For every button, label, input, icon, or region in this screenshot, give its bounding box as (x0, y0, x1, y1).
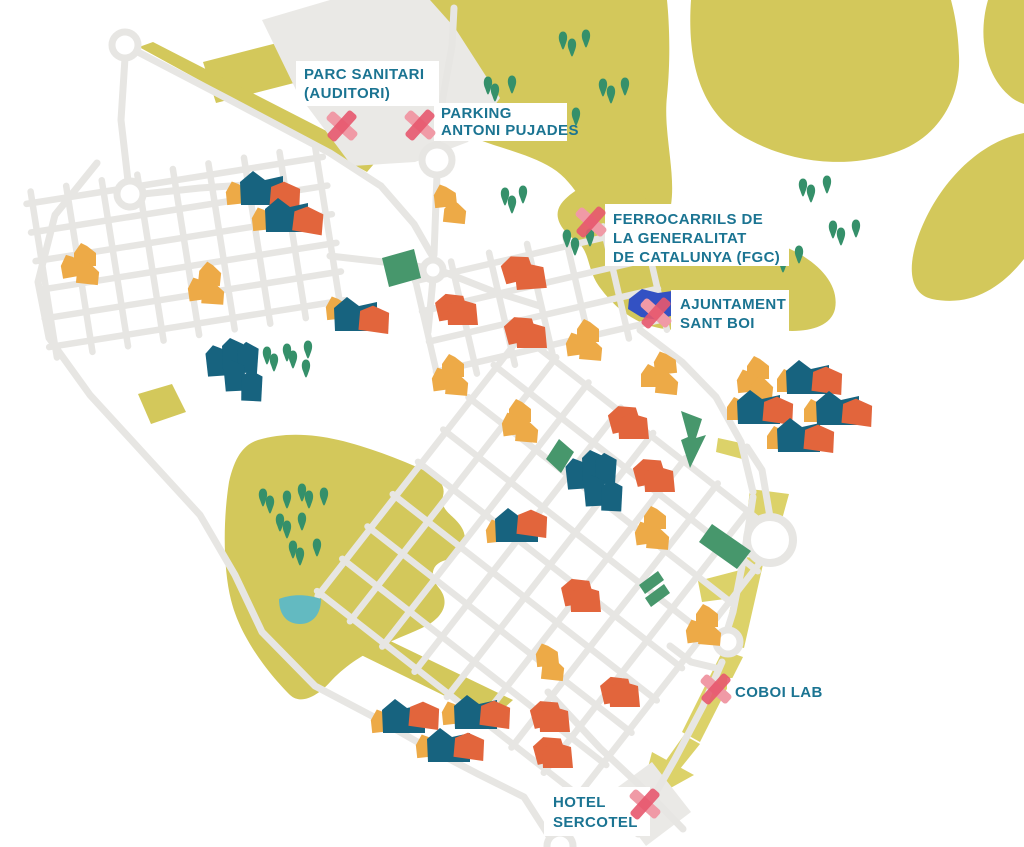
tree-icon (837, 228, 845, 246)
park-area (690, 0, 959, 162)
tree-icon (270, 354, 278, 372)
road (121, 58, 128, 181)
tree-icon (823, 176, 831, 194)
label-coboi-lab: COBOI LAB (735, 684, 823, 701)
house-icon-orange (452, 731, 486, 761)
roundabout (117, 181, 143, 207)
park-area (983, 0, 1024, 104)
street (173, 169, 199, 335)
tree-icon (852, 220, 860, 238)
roundabout (112, 32, 138, 58)
tree-icon (519, 186, 527, 204)
santboi-map: PARC SANITARI(AUDITORI)PARKINGANTONI PUJ… (0, 0, 1024, 847)
roundabout (423, 260, 443, 280)
tree-icon (799, 179, 807, 197)
map-canvas: PARC SANITARI(AUDITORI)PARKINGANTONI PUJ… (0, 0, 1024, 847)
tree-icon (508, 196, 516, 214)
roundabout (422, 145, 452, 175)
roundabout (747, 517, 793, 563)
tree-icon (829, 221, 837, 239)
street-grid (25, 146, 348, 359)
road (434, 175, 437, 255)
park-area (138, 384, 186, 424)
tree-icon (263, 347, 271, 365)
tree-icon (302, 360, 310, 378)
poi-hotel-sercotel: HOTELSERCOTEL (544, 787, 662, 836)
tree-icon (807, 185, 815, 203)
tree-icon (304, 341, 312, 359)
poi-ferrocarrils-fgc: FERROCARRILS DELA GENERALITATDE CATALUNY… (574, 204, 789, 266)
park-area (912, 133, 1024, 301)
house-icon-orange (407, 700, 441, 730)
tree-icon (289, 351, 297, 369)
street (280, 152, 306, 318)
